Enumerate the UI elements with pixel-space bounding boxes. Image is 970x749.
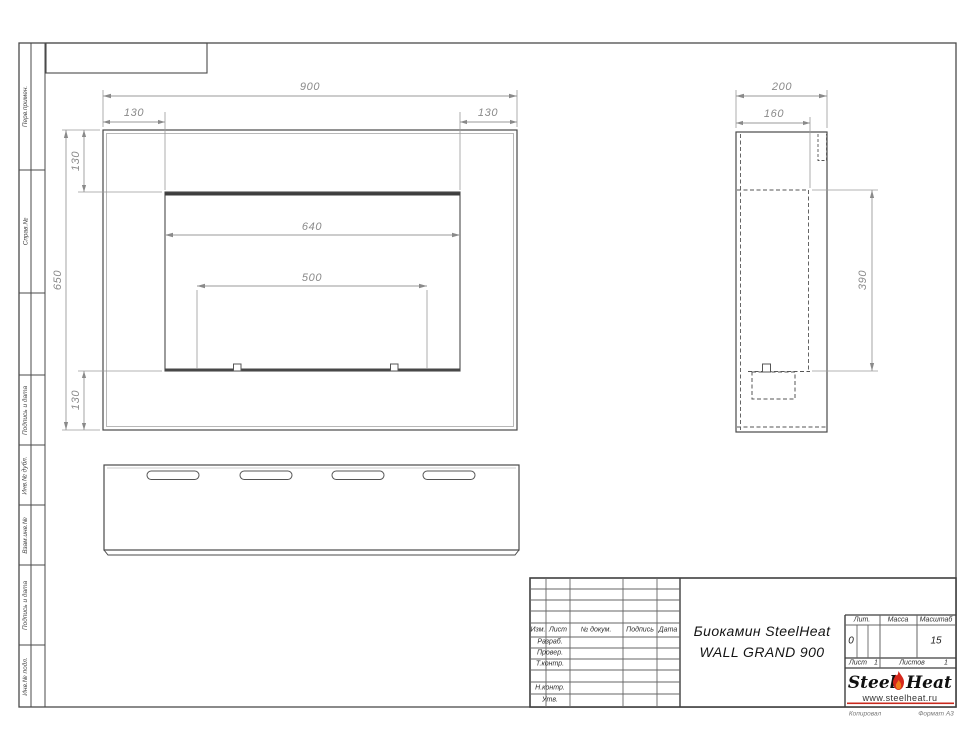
tb-row-nkontr: Н.контр.: [535, 685, 565, 692]
tb-col-date: Дата: [659, 627, 677, 634]
footer-kopiroval: Копировал: [849, 711, 881, 718]
dim-opening-width: 640: [302, 221, 322, 233]
tb-row-utv: Утв.: [542, 697, 558, 704]
tb-scale-label: Масштаб: [920, 617, 953, 624]
footer-format: Формат А3: [918, 711, 954, 718]
drawing-sheet: Перв.примен. Справ.№ Подпись и дата Инв.…: [0, 0, 970, 749]
tb-sheet-value: 1: [874, 660, 878, 667]
tb-row-prover: Провер.: [537, 650, 563, 657]
tb-sheet-label: Лист: [849, 660, 867, 667]
tb-sheets-value: 1: [944, 660, 948, 667]
margin-label-vzam-inv: Взам.инв.№: [19, 505, 32, 565]
dim-front-bottom: 130: [70, 390, 82, 410]
tb-col-izm: Изм.: [531, 627, 546, 634]
margin-label-sprav-no: Справ.№: [19, 170, 32, 293]
flame-icon: [891, 671, 906, 691]
dim-front-top: 130: [70, 151, 82, 171]
tb-col-list: Лист: [549, 627, 567, 634]
dim-side-depth: 200: [772, 81, 792, 93]
dim-side-inner-depth: 160: [764, 108, 784, 120]
side-view: [736, 132, 827, 432]
logo-url: www.steelheat.ru: [863, 693, 938, 703]
drawing-title-line1: Биокамин SteelHeat: [694, 623, 831, 639]
tb-row-tkontr: Т.контр.: [536, 661, 564, 668]
dim-burner-width: 500: [302, 272, 322, 284]
margin-label-inv-podl: Инв.№ подл.: [19, 645, 32, 707]
dim-front-inset-right: 130: [478, 107, 498, 119]
burner-tray-view: [104, 465, 519, 555]
tb-row-razrab: Разраб.: [537, 639, 562, 646]
tb-col-sign: Подпись: [626, 627, 654, 634]
tb-sheets-label: Листов: [899, 660, 925, 667]
tb-scale-value: 15: [930, 636, 941, 647]
dim-side-opening-height: 390: [857, 270, 869, 290]
margin-label-podpis-data-2: Подпись и дата: [19, 565, 32, 645]
margin-label-perv-primen: Перв.примен.: [19, 43, 32, 170]
dim-front-inset-left: 130: [124, 107, 144, 119]
tb-col-doc: № докум.: [581, 627, 612, 634]
drawing-title-line2: WALL GRAND 900: [700, 644, 825, 660]
logo-heat-text: Heat: [906, 673, 952, 693]
logo-steel-text: Steel: [848, 673, 896, 693]
dim-front-width: 900: [300, 81, 320, 93]
dim-front-height: 650: [52, 270, 64, 290]
tb-mass-label: Масса: [888, 617, 909, 624]
margin-label-inv-dubl: Инв.№ дубл.: [19, 445, 32, 505]
tb-lit-label: Лит.: [854, 617, 870, 624]
tb-lit-value: 0: [848, 636, 854, 647]
margin-label-podpis-data-1: Подпись и дата: [19, 375, 32, 445]
